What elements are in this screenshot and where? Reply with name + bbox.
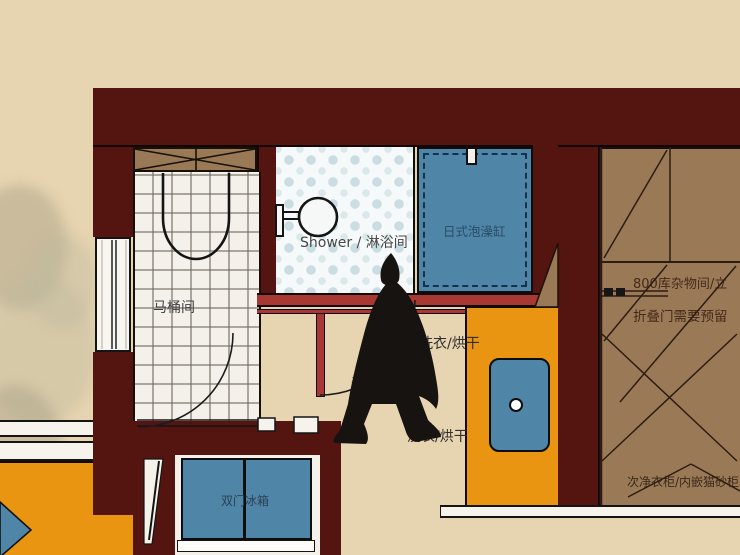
toilet-room-floor — [133, 172, 261, 421]
floorplan-canvas: Shower / 淋浴间 日式泡澡缸 马桶间 干区洗手台 洗衣/烘干 洗衣/烘干… — [0, 0, 740, 555]
washer-dryer-label-lower: 洗衣/烘干 — [407, 429, 468, 445]
window — [95, 237, 131, 352]
lower-left-wall-band — [0, 420, 95, 437]
tub-faucet — [466, 147, 477, 165]
tree-texture-blob — [28, 235, 98, 330]
tub-label: 日式泡澡缸 — [443, 225, 506, 239]
fridge-base-shelf — [177, 540, 315, 552]
door-leaf — [316, 313, 325, 397]
wall-top — [93, 88, 740, 147]
tub-dashed-outline — [423, 153, 527, 287]
wall-fridge-left — [133, 455, 178, 555]
toilet-room-label: 马桶间 — [153, 300, 195, 316]
wall-laundry-right — [558, 147, 600, 506]
wall-tub-right — [533, 145, 558, 310]
lower-left-wall-band — [0, 441, 95, 461]
washbasin-drain — [509, 398, 523, 412]
dry-area-sink-label: 干区洗手台 — [351, 377, 416, 392]
bottom-right-wall-band — [440, 505, 740, 518]
japanese-soaking-tub — [417, 147, 533, 293]
shower-room-floor — [276, 147, 415, 293]
washer-dryer-label-upper: 洗衣/烘干 — [419, 336, 480, 352]
storage-room-cabinets — [600, 147, 740, 505]
storage-room-label-line1: 800库杂物间/立 — [633, 278, 727, 293]
shower-room-label: Shower / 淋浴间 — [300, 235, 408, 251]
toilet-overhead-cabinet — [133, 147, 257, 172]
closet-catlitter-label: 次净衣柜/内嵌猫砂柜 — [627, 476, 739, 490]
wall-left-upper — [93, 147, 133, 237]
wall-fridge-right — [318, 421, 341, 555]
fridge-label: 双门冰箱 — [221, 495, 269, 509]
partition-red-band — [257, 293, 558, 307]
storage-room-label-line2: 折叠门需要预留 — [633, 310, 728, 326]
